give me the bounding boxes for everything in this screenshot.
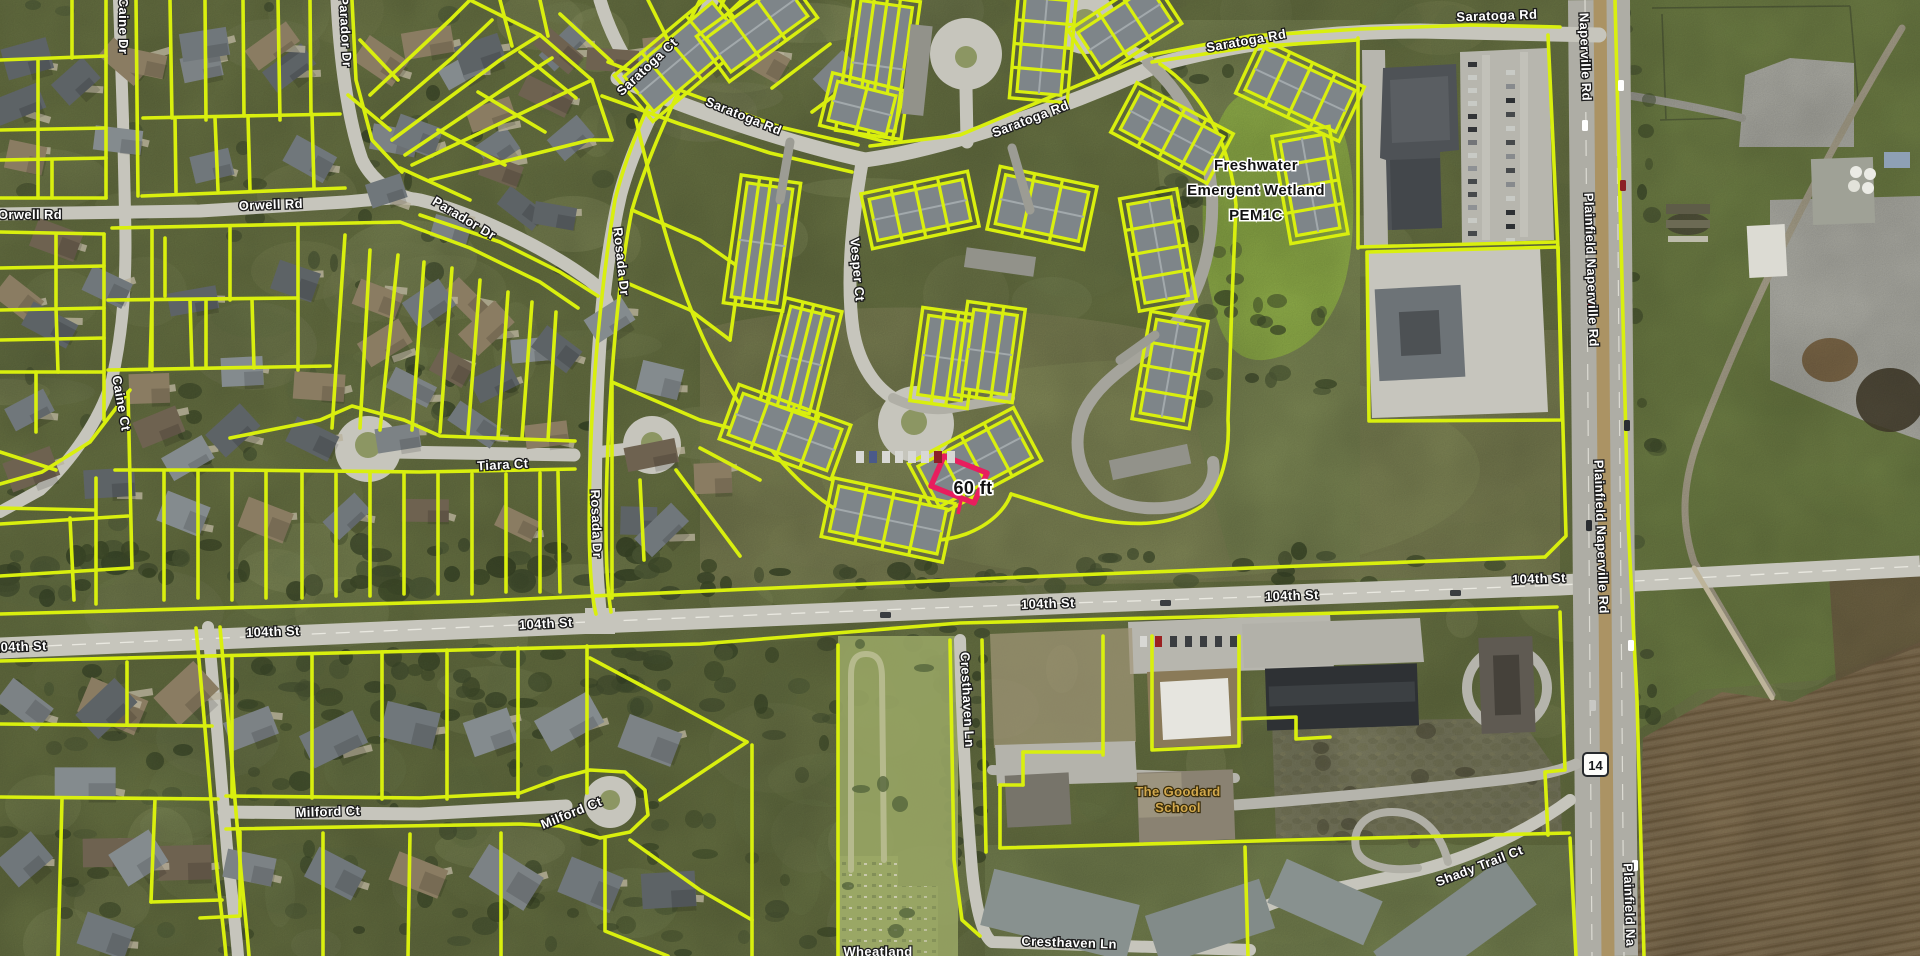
svg-text:Milford Ct: Milford Ct [295, 803, 360, 820]
svg-text:Saratoga Rd: Saratoga Rd [1456, 7, 1537, 25]
svg-text:Freshwater: Freshwater [1214, 157, 1298, 174]
svg-text:Plainfield Na: Plainfield Na [1621, 863, 1639, 947]
svg-text:104th St: 104th St [519, 615, 574, 633]
svg-text:Naperville Rd: Naperville Rd [1576, 12, 1594, 101]
svg-text:The Goodard: The Goodard [1135, 784, 1220, 799]
svg-text:104th St: 104th St [0, 638, 47, 655]
svg-text:104th St: 104th St [1512, 570, 1567, 587]
svg-text:PEM1C: PEM1C [1229, 207, 1283, 224]
svg-text:104th St: 104th St [1265, 587, 1320, 604]
svg-text:Emergent Wetland: Emergent Wetland [1187, 182, 1325, 199]
svg-text:104th St: 104th St [1021, 595, 1076, 612]
svg-text:Rosada Dr: Rosada Dr [588, 489, 605, 558]
svg-text:Caine Dr: Caine Dr [116, 0, 131, 54]
svg-text:14: 14 [1588, 758, 1603, 773]
svg-text:Orwell Rd: Orwell Rd [238, 196, 303, 213]
svg-text:Orwell Rd: Orwell Rd [0, 207, 62, 222]
svg-text:104th St: 104th St [246, 623, 301, 640]
svg-text:60 ft: 60 ft [953, 478, 992, 498]
svg-text:Tiara Ct: Tiara Ct [477, 456, 529, 474]
svg-text:School: School [1155, 800, 1201, 815]
svg-text:Wheatland: Wheatland [843, 944, 912, 956]
